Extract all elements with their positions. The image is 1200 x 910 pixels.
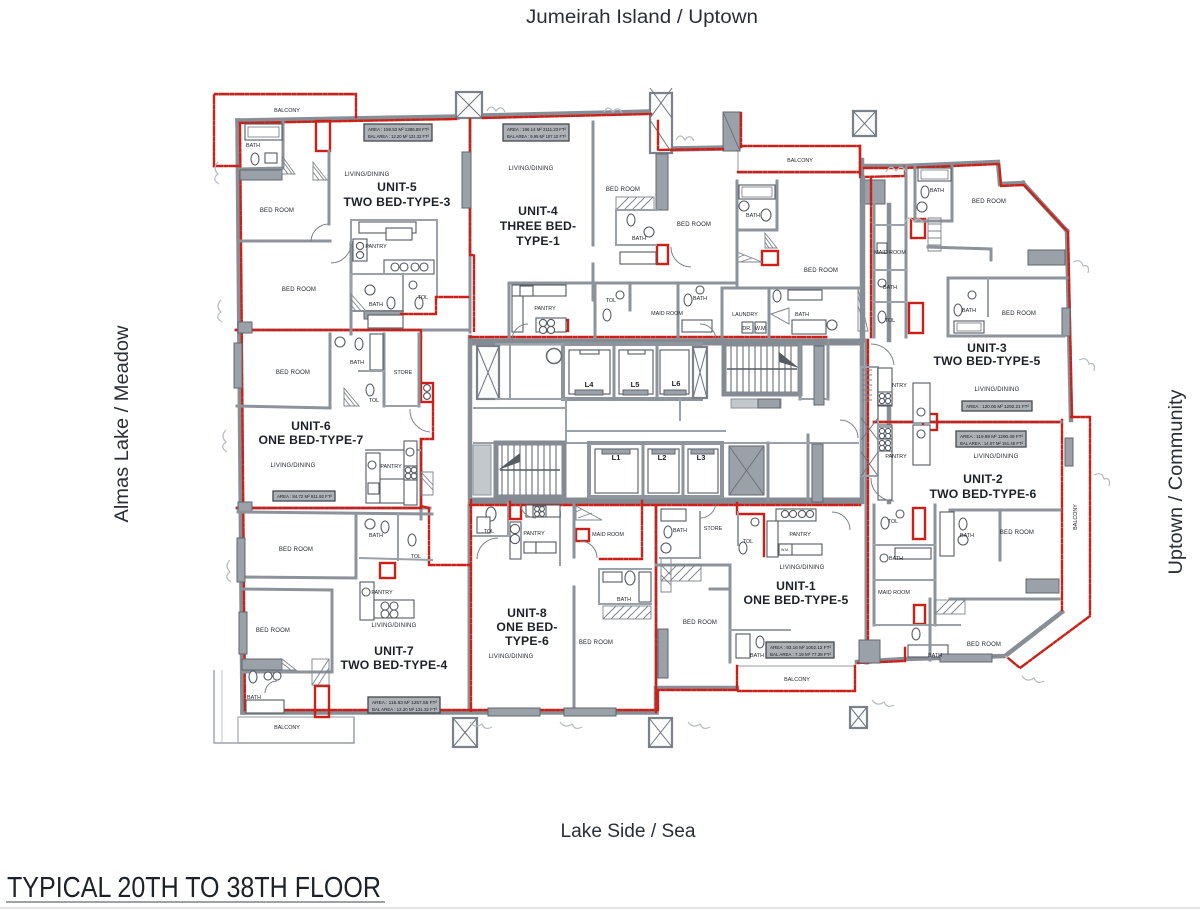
svg-text:AREA : 93.16 M² 1002.12 FT²: AREA : 93.16 M² 1002.12 FT² — [770, 645, 831, 650]
svg-text:AREA : 196.14 M² 2111.23 FT²: AREA : 196.14 M² 2111.23 FT² — [507, 127, 566, 132]
svg-text:UNIT-8: UNIT-8 — [507, 606, 547, 620]
svg-text:L3: L3 — [697, 453, 706, 462]
svg-text:L1: L1 — [612, 453, 621, 462]
svg-text:BED ROOM: BED ROOM — [260, 208, 294, 214]
svg-text:W.M.: W.M. — [755, 326, 767, 332]
svg-text:BED ROOM: BED ROOM — [683, 620, 717, 626]
svg-text:BAL AREA : 12.20 M² 131.32 FT²: BAL AREA : 12.20 M² 131.32 FT² — [368, 134, 429, 139]
svg-text:BATH: BATH — [369, 533, 383, 539]
svg-text:L5: L5 — [631, 380, 640, 389]
svg-text:BALCONY: BALCONY — [784, 677, 810, 683]
svg-text:TWO BED-TYPE-5: TWO BED-TYPE-5 — [933, 354, 1040, 368]
svg-text:BATH: BATH — [246, 143, 260, 149]
svg-text:ONE BED-TYPE-7: ONE BED-TYPE-7 — [258, 433, 363, 447]
svg-text:LIVING/DINING: LIVING/DINING — [372, 623, 417, 629]
svg-text:TOL: TOL — [885, 318, 895, 324]
svg-text:BED ROOM: BED ROOM — [606, 187, 640, 193]
svg-text:UNIT-6: UNIT-6 — [291, 419, 331, 433]
svg-text:LIVING/DINING: LIVING/DINING — [271, 463, 316, 469]
svg-text:LIVING/DINING: LIVING/DINING — [974, 454, 1019, 460]
svg-text:PANTRY: PANTRY — [789, 532, 811, 538]
svg-text:UNIT-3: UNIT-3 — [967, 341, 1007, 355]
svg-text:BATH: BATH — [369, 302, 383, 308]
svg-text:UNIT-5: UNIT-5 — [377, 180, 417, 194]
svg-text:TWO BED-TYPE-6: TWO BED-TYPE-6 — [929, 487, 1036, 501]
svg-text:BAL AREA : 12.20 M² 131.32 FT²: BAL AREA : 12.20 M² 131.32 FT² — [372, 707, 437, 712]
svg-text:PANTRY: PANTRY — [380, 464, 402, 470]
svg-text:AREA : 116.63 M² 1257.55 FT²: AREA : 116.63 M² 1257.55 FT² — [372, 700, 437, 705]
svg-text:BED ROOM: BED ROOM — [804, 268, 838, 274]
svg-text:TOL: TOL — [606, 298, 616, 304]
svg-text:BATH: BATH — [350, 360, 364, 366]
svg-text:MAID ROOM: MAID ROOM — [592, 532, 624, 538]
svg-text:BATH: BATH — [960, 533, 974, 539]
svg-text:TOL: TOL — [484, 529, 494, 535]
svg-text:Uptown / Community: Uptown / Community — [1166, 389, 1187, 575]
svg-text:TYPE-6: TYPE-6 — [505, 634, 549, 648]
svg-text:LAUNDRY: LAUNDRY — [732, 312, 758, 318]
svg-text:AREA : 84.72 M² 911.92 FT²: AREA : 84.72 M² 911.92 FT² — [277, 494, 332, 499]
svg-text:BATH: BATH — [750, 653, 764, 659]
svg-text:TOL: TOL — [411, 554, 421, 560]
svg-text:TWO BED-TYPE-3: TWO BED-TYPE-3 — [343, 195, 450, 209]
svg-text:BATH: BATH — [889, 556, 903, 562]
svg-text:BATH: BATH — [883, 285, 897, 291]
svg-text:TOL: TOL — [743, 539, 753, 545]
svg-text:PANTRY: PANTRY — [523, 531, 545, 537]
svg-text:LIVING/DINING: LIVING/DINING — [975, 387, 1020, 393]
svg-text:MAID ROOM: MAID ROOM — [651, 311, 683, 317]
svg-text:Jumeirah Island / Uptown: Jumeirah Island / Uptown — [526, 7, 758, 28]
svg-text:BATH: BATH — [962, 308, 976, 314]
svg-text:BED ROOM: BED ROOM — [967, 642, 1001, 648]
svg-text:TYPICAL 20TH TO 38TH FLOOR: TYPICAL 20TH TO 38TH FLOOR — [7, 872, 381, 904]
svg-text:STORE: STORE — [394, 370, 413, 376]
svg-text:PANTRY: PANTRY — [371, 590, 393, 596]
svg-text:BATH: BATH — [930, 188, 944, 194]
svg-text:PANTRY: PANTRY — [885, 454, 907, 460]
svg-text:UNIT-4: UNIT-4 — [518, 204, 558, 218]
svg-text:LIVING/DINING: LIVING/DINING — [345, 172, 390, 178]
svg-text:UNIT-2: UNIT-2 — [963, 472, 1003, 486]
svg-text:LIVING/DINING: LIVING/DINING — [780, 565, 825, 571]
svg-text:ONE BED-TYPE-5: ONE BED-TYPE-5 — [743, 593, 848, 607]
svg-text:BALCONY: BALCONY — [1073, 504, 1079, 530]
svg-text:W.M.: W.M. — [781, 548, 789, 552]
svg-text:BED ROOM: BED ROOM — [677, 222, 711, 228]
svg-text:BAL AREA : 14.07 M² 151.45 FT²: BAL AREA : 14.07 M² 151.45 FT² — [960, 441, 1023, 446]
svg-text:BED ROOM: BED ROOM — [1000, 530, 1034, 536]
svg-text:PANTRY: PANTRY — [365, 244, 387, 250]
svg-text:BED ROOM: BED ROOM — [282, 287, 316, 293]
svg-text:BAL AREA : 9.95 M² 107.10 FT²: BAL AREA : 9.95 M² 107.10 FT² — [507, 134, 566, 139]
svg-text:BATH: BATH — [673, 528, 687, 534]
svg-text:AREA : 120.05 M² 1292.21 FT²: AREA : 120.05 M² 1292.21 FT² — [966, 404, 1029, 409]
svg-text:BAL AREA : 7.19 M² 77.38 FT²: BAL AREA : 7.19 M² 77.38 FT² — [770, 652, 831, 657]
svg-text:L2: L2 — [658, 453, 667, 462]
svg-text:BALCONY: BALCONY — [787, 158, 813, 164]
svg-text:TOL: TOL — [418, 295, 428, 301]
svg-text:PANTRY: PANTRY — [534, 306, 556, 312]
svg-text:BED ROOM: BED ROOM — [276, 370, 310, 376]
svg-text:BATH: BATH — [247, 695, 261, 701]
svg-text:BATH: BATH — [617, 597, 631, 603]
svg-text:ONE BED-: ONE BED- — [496, 620, 557, 634]
svg-text:UNIT-7: UNIT-7 — [374, 644, 414, 658]
svg-text:BED ROOM: BED ROOM — [579, 640, 613, 646]
svg-text:MAID ROOM: MAID ROOM — [878, 590, 910, 596]
svg-text:BATH: BATH — [795, 312, 809, 318]
svg-text:LIVING/DINING: LIVING/DINING — [489, 654, 534, 660]
svg-text:Almas Lake / Meadow: Almas Lake / Meadow — [112, 325, 133, 522]
svg-text:DR.: DR. — [742, 326, 751, 332]
svg-text:L4: L4 — [585, 380, 595, 389]
svg-text:LIVING/DINING: LIVING/DINING — [509, 166, 554, 172]
svg-text:UNIT-1: UNIT-1 — [776, 579, 816, 593]
svg-text:BATH: BATH — [746, 213, 760, 219]
svg-text:TYPE-1: TYPE-1 — [516, 234, 560, 248]
svg-text:STORE: STORE — [704, 526, 723, 532]
svg-text:BED ROOM: BED ROOM — [972, 199, 1006, 205]
svg-text:Lake Side / Sea: Lake Side / Sea — [561, 821, 696, 842]
svg-text:TOL: TOL — [888, 519, 898, 525]
svg-text:L6: L6 — [672, 379, 681, 388]
svg-text:BED ROOM: BED ROOM — [279, 547, 313, 553]
svg-text:BALCONY: BALCONY — [274, 108, 300, 114]
svg-text:AREA : 159.53 M² 1386.88 FT²: AREA : 159.53 M² 1386.88 FT² — [368, 127, 429, 132]
svg-text:TWO BED-TYPE-4: TWO BED-TYPE-4 — [340, 658, 447, 672]
svg-text:BED ROOM: BED ROOM — [256, 628, 290, 634]
svg-text:BED ROOM: BED ROOM — [1002, 311, 1036, 317]
svg-text:THREE BED-: THREE BED- — [500, 219, 576, 233]
svg-text:BATH: BATH — [632, 236, 646, 242]
svg-text:MAID ROOM: MAID ROOM — [874, 250, 906, 256]
svg-text:BATH: BATH — [693, 296, 707, 302]
svg-text:BALCONY: BALCONY — [274, 725, 300, 731]
svg-text:BATH: BATH — [928, 653, 942, 659]
svg-text:AREA : 119.89 M² 1290.49 FT²: AREA : 119.89 M² 1290.49 FT² — [960, 434, 1023, 439]
svg-text:TOL: TOL — [369, 398, 379, 404]
